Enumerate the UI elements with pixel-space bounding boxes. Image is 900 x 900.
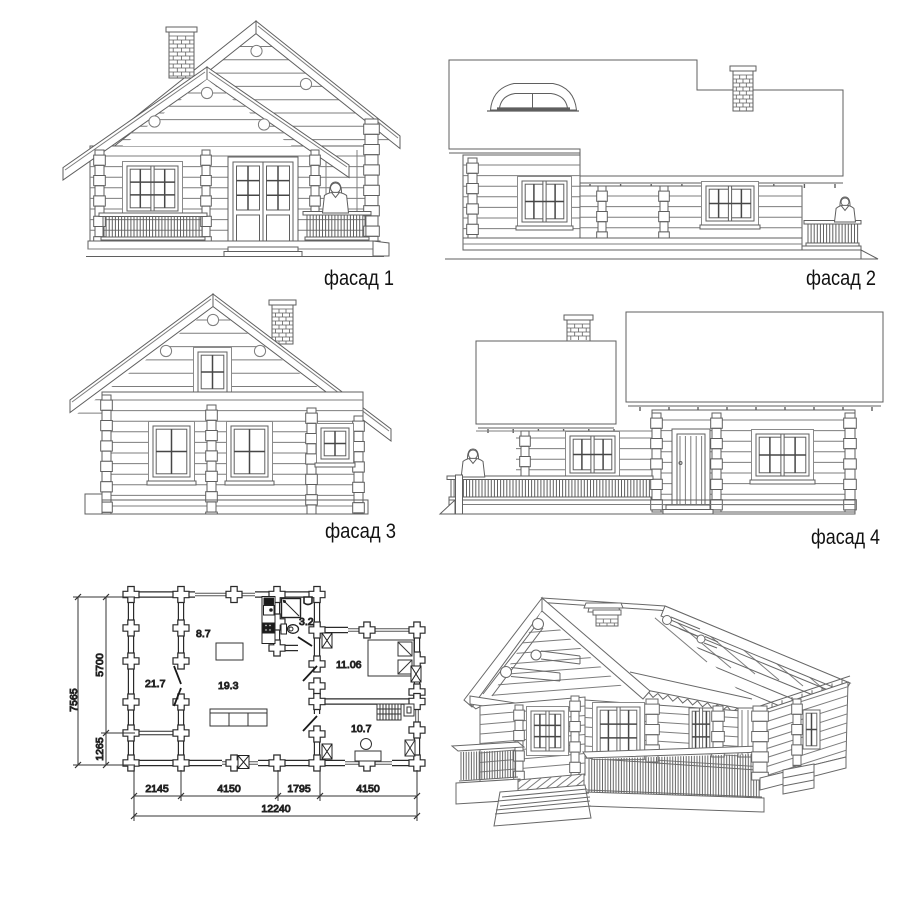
svg-text:фасад 1: фасад 1	[324, 266, 394, 290]
svg-text:11.06: 11.06	[336, 659, 362, 671]
svg-text:10.7: 10.7	[351, 723, 372, 735]
svg-text:5700: 5700	[94, 653, 106, 677]
svg-text:1795: 1795	[287, 783, 311, 795]
svg-text:фасад 3: фасад 3	[325, 519, 396, 543]
svg-text:4150: 4150	[217, 783, 241, 795]
svg-text:1265: 1265	[94, 737, 106, 761]
svg-text:фасад 2: фасад 2	[806, 266, 876, 290]
svg-text:7565: 7565	[68, 688, 80, 712]
svg-text:фасад 4: фасад 4	[811, 525, 880, 549]
svg-text:2145: 2145	[145, 783, 169, 795]
svg-text:12240: 12240	[261, 803, 290, 815]
svg-text:19.3: 19.3	[218, 680, 239, 692]
svg-text:3.2: 3.2	[299, 616, 314, 628]
svg-text:8.7: 8.7	[196, 628, 211, 640]
svg-text:21.7: 21.7	[145, 678, 166, 690]
svg-text:4150: 4150	[356, 783, 380, 795]
